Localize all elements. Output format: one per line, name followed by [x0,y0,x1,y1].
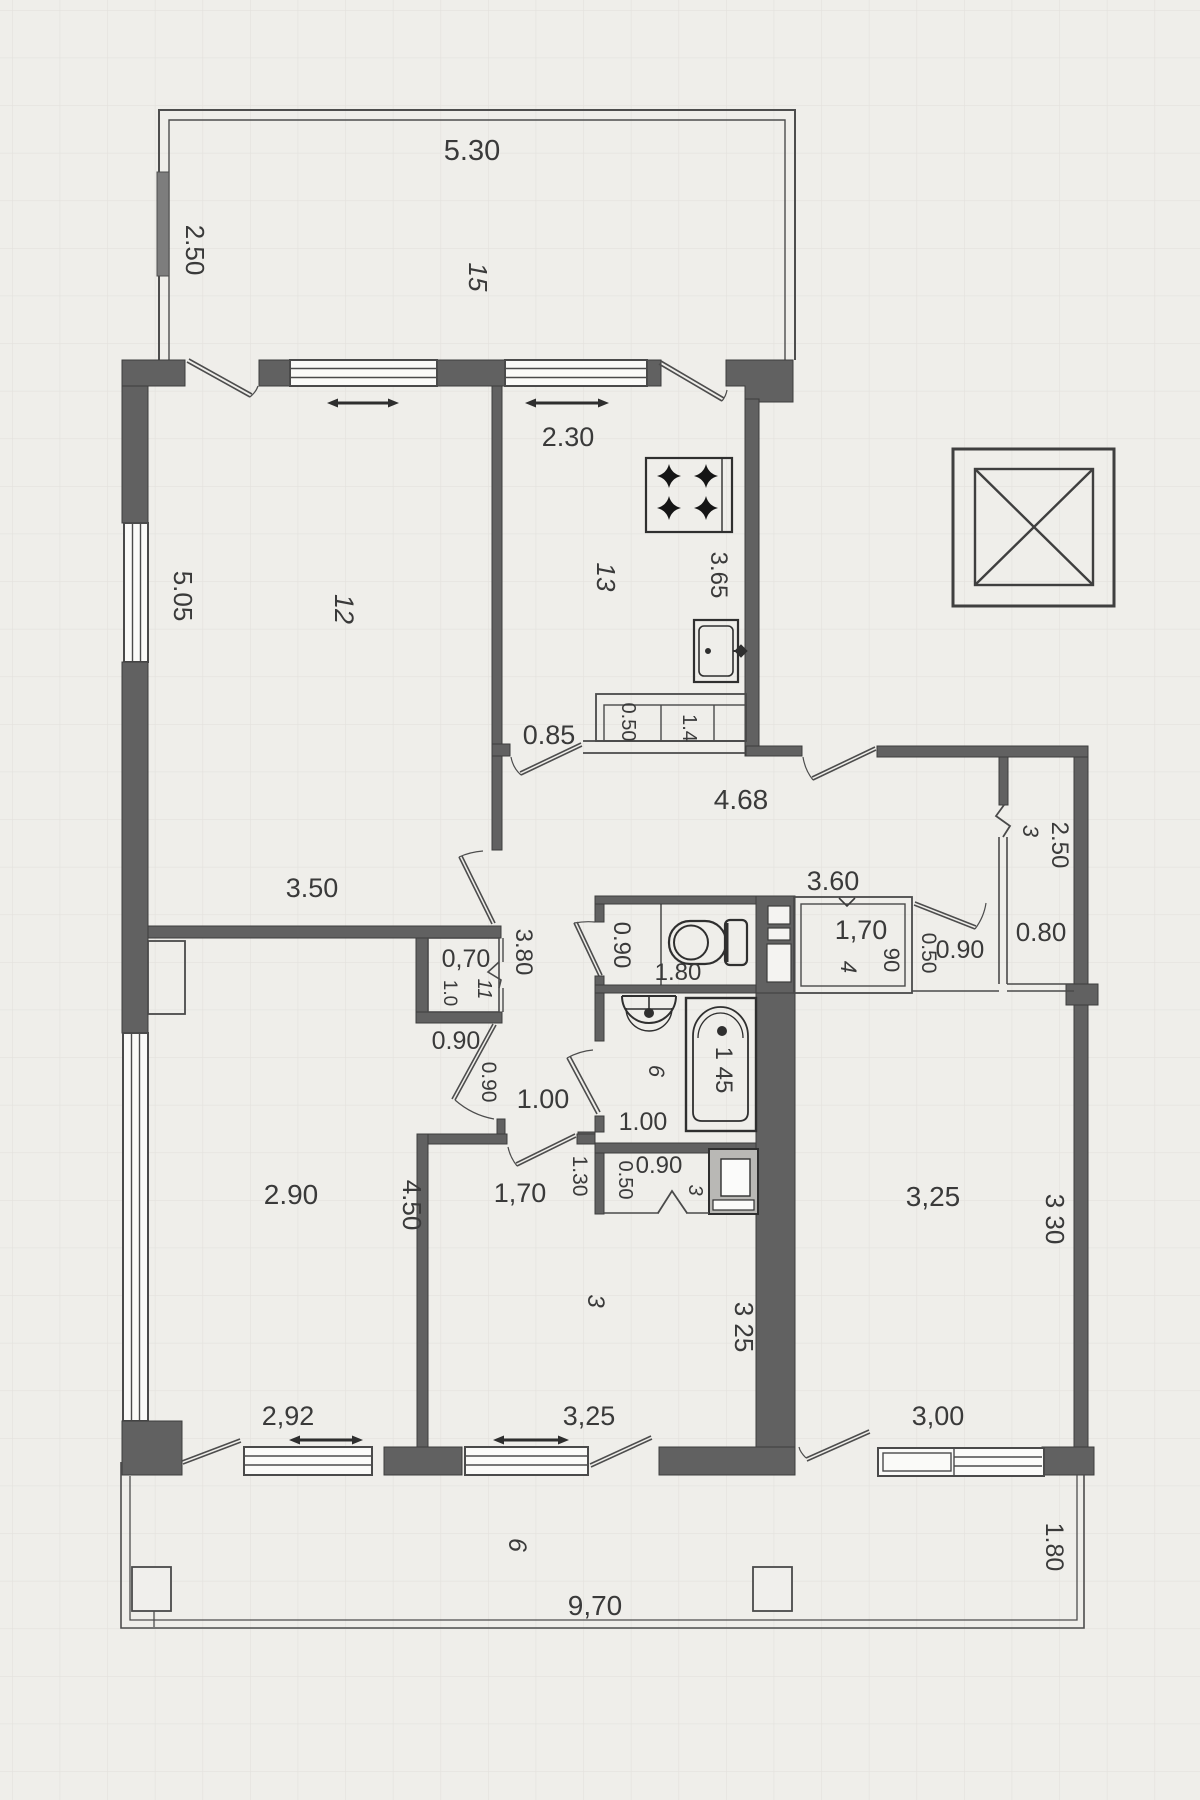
svg-text:3.80: 3.80 [510,929,537,976]
svg-text:3: 3 [684,1184,706,1195]
svg-text:0.90: 0.90 [477,1062,500,1103]
svg-text:3,00: 3,00 [912,1401,965,1431]
svg-text:11: 11 [473,979,495,1000]
svg-text:1.80: 1.80 [655,959,702,986]
svg-text:4.68: 4.68 [714,784,769,815]
svg-text:15: 15 [463,263,493,292]
svg-text:0.90: 0.90 [936,936,985,964]
svg-text:3,25: 3,25 [906,1181,961,1212]
svg-text:0.80: 0.80 [1016,917,1067,947]
svg-text:5.05: 5.05 [168,571,198,622]
svg-text:6: 6 [503,1538,531,1552]
svg-text:1.0: 1.0 [439,980,460,1006]
svg-text:3.65: 3.65 [705,552,732,599]
svg-text:2.30: 2.30 [542,422,595,452]
svg-text:1.00: 1.00 [619,1108,668,1136]
svg-text:2.50: 2.50 [1046,822,1073,869]
svg-text:3: 3 [1018,825,1043,838]
svg-text:13: 13 [591,563,621,592]
svg-text:0.50: 0.50 [617,703,639,742]
svg-text:3 25: 3 25 [729,1302,759,1353]
svg-text:1.00: 1.00 [517,1084,570,1114]
svg-text:2.90: 2.90 [264,1179,319,1210]
svg-text:12: 12 [329,594,359,624]
svg-text:1,70: 1,70 [835,915,888,945]
svg-text:90: 90 [879,948,904,972]
svg-text:3: 3 [582,1294,609,1308]
svg-text:0.85: 0.85 [523,720,576,750]
svg-text:0.50: 0.50 [614,1161,636,1200]
svg-text:6: 6 [644,1065,669,1078]
svg-text:5.30: 5.30 [444,135,500,167]
svg-text:0.90: 0.90 [636,1152,683,1179]
svg-text:3.50: 3.50 [286,873,339,903]
svg-text:2,92: 2,92 [262,1401,315,1431]
svg-text:4: 4 [836,961,861,973]
svg-text:4.50: 4.50 [397,1180,427,1231]
svg-text:0,70: 0,70 [442,945,491,973]
svg-text:9,70: 9,70 [568,1590,623,1621]
svg-text:1.4: 1.4 [678,714,700,742]
svg-text:0.90: 0.90 [608,922,635,969]
svg-text:3,25: 3,25 [563,1401,616,1431]
svg-text:2.50: 2.50 [180,225,210,276]
svg-text:0.90: 0.90 [432,1027,481,1055]
svg-text:1.80: 1.80 [1040,1523,1068,1572]
svg-text:3 30: 3 30 [1040,1194,1070,1245]
svg-text:1 45: 1 45 [710,1047,737,1094]
svg-text:1,70: 1,70 [494,1178,547,1208]
svg-text:3.60: 3.60 [807,866,860,896]
svg-text:1.30: 1.30 [568,1156,591,1197]
